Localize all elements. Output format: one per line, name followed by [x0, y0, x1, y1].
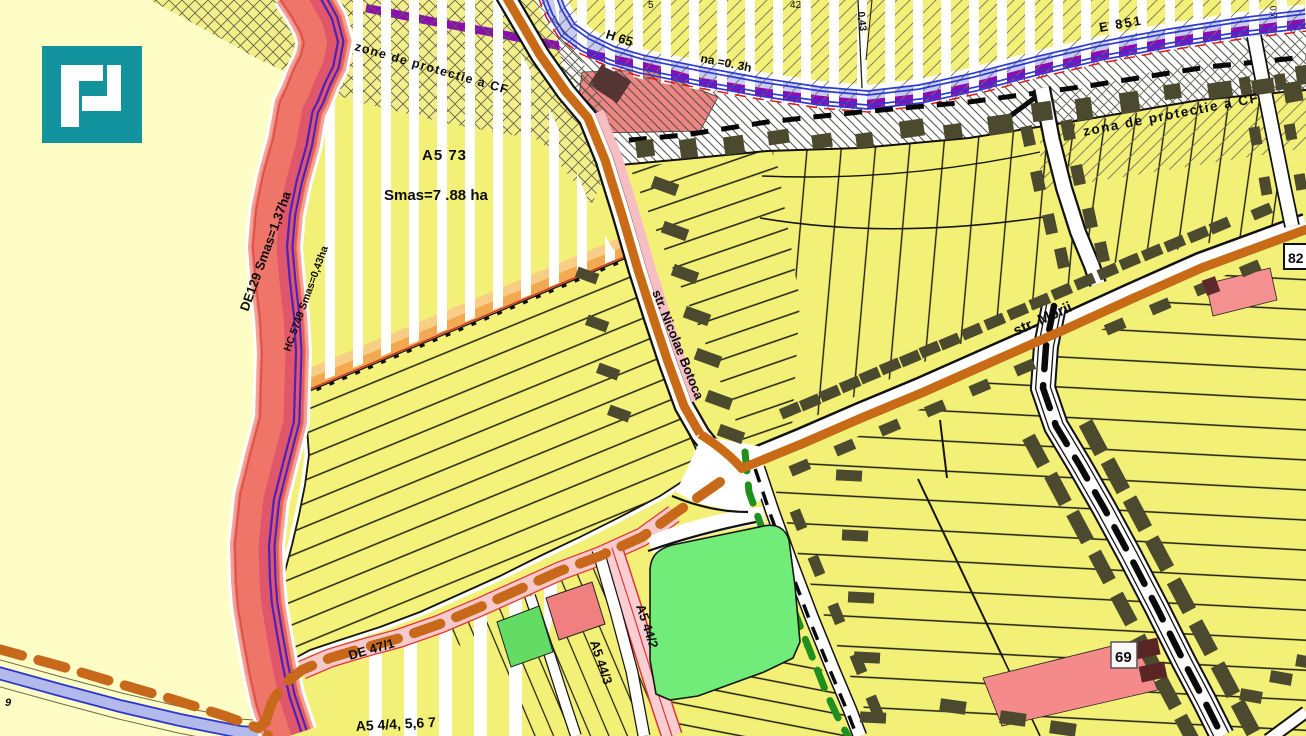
svg-text:A5 73: A5 73	[422, 147, 467, 164]
svg-text:9: 9	[5, 697, 12, 709]
svg-text:Smas=7 .88 ha: Smas=7 .88 ha	[384, 187, 488, 204]
svg-text:69: 69	[1115, 649, 1132, 666]
svg-text:0,43: 0,43	[855, 11, 868, 32]
svg-text:0,7: 0,7	[1268, 5, 1279, 18]
svg-text:5: 5	[648, 0, 654, 11]
svg-text:42: 42	[790, 0, 802, 11]
svg-text:82: 82	[1288, 250, 1304, 266]
